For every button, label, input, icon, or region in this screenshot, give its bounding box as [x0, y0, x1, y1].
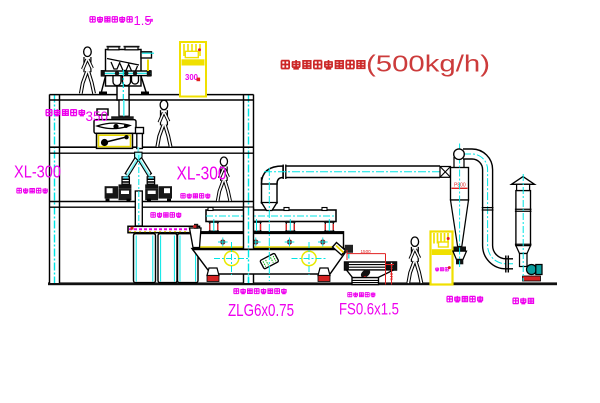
svg-text:ZLG6x0.75: ZLG6x0.75: [228, 300, 294, 320]
svg-text:940: 940: [389, 272, 394, 280]
svg-text:1500: 1500: [361, 249, 372, 254]
svg-text:350: 350: [86, 109, 109, 124]
svg-text:FS0.6x1.5: FS0.6x1.5: [339, 300, 399, 319]
svg-text:XL-300: XL-300: [14, 162, 61, 182]
svg-text:XL-300: XL-300: [177, 164, 227, 184]
svg-text:(500kg/h): (500kg/h): [366, 51, 490, 77]
